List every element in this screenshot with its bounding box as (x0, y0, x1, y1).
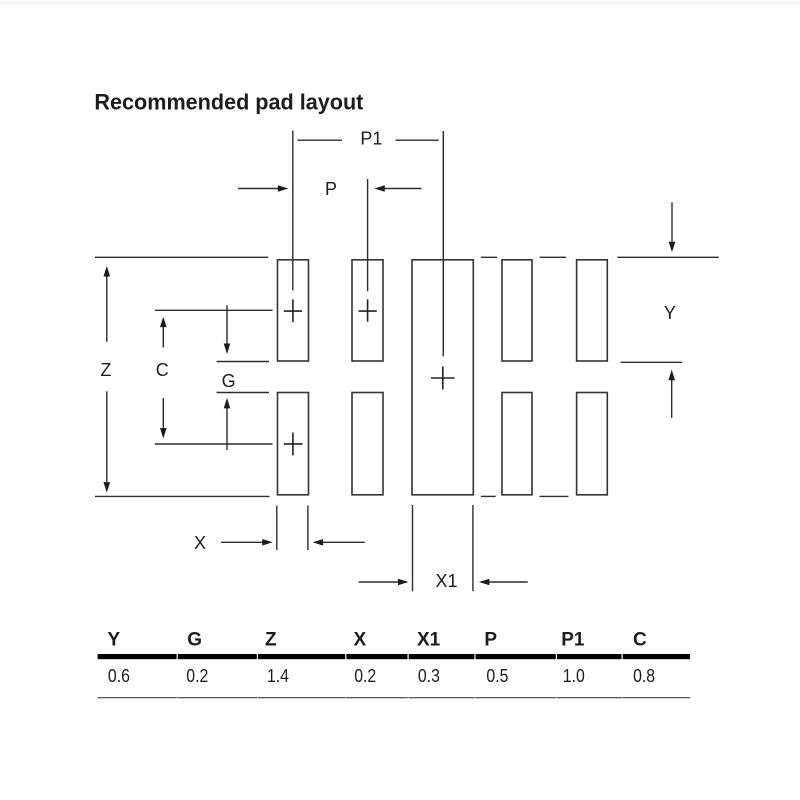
svg-text:Z: Z (265, 630, 277, 651)
svg-text:Recommended pad layout: Recommended pad layout (94, 89, 363, 114)
svg-text:Y: Y (107, 630, 120, 651)
svg-text:X1: X1 (417, 630, 441, 651)
svg-text:P: P (325, 179, 337, 199)
svg-text:0.3: 0.3 (418, 665, 440, 686)
svg-text:X: X (194, 533, 206, 553)
svg-text:1.4: 1.4 (267, 665, 289, 686)
svg-text:G: G (222, 371, 236, 391)
svg-text:0.5: 0.5 (486, 665, 508, 686)
svg-text:C: C (633, 630, 647, 651)
svg-text:Y: Y (664, 303, 676, 323)
svg-text:X1: X1 (436, 571, 458, 591)
svg-text:0.8: 0.8 (633, 665, 655, 686)
svg-text:0.2: 0.2 (186, 665, 208, 686)
svg-text:C: C (156, 360, 169, 380)
svg-text:G: G (187, 630, 202, 651)
svg-text:P: P (484, 630, 497, 651)
svg-text:0.6: 0.6 (108, 665, 130, 686)
svg-text:1.0: 1.0 (563, 665, 585, 686)
svg-text:Z: Z (100, 360, 111, 380)
svg-text:P1: P1 (360, 129, 382, 149)
svg-text:P1: P1 (561, 630, 585, 651)
svg-text:0.2: 0.2 (354, 665, 376, 686)
svg-text:X: X (354, 630, 367, 651)
